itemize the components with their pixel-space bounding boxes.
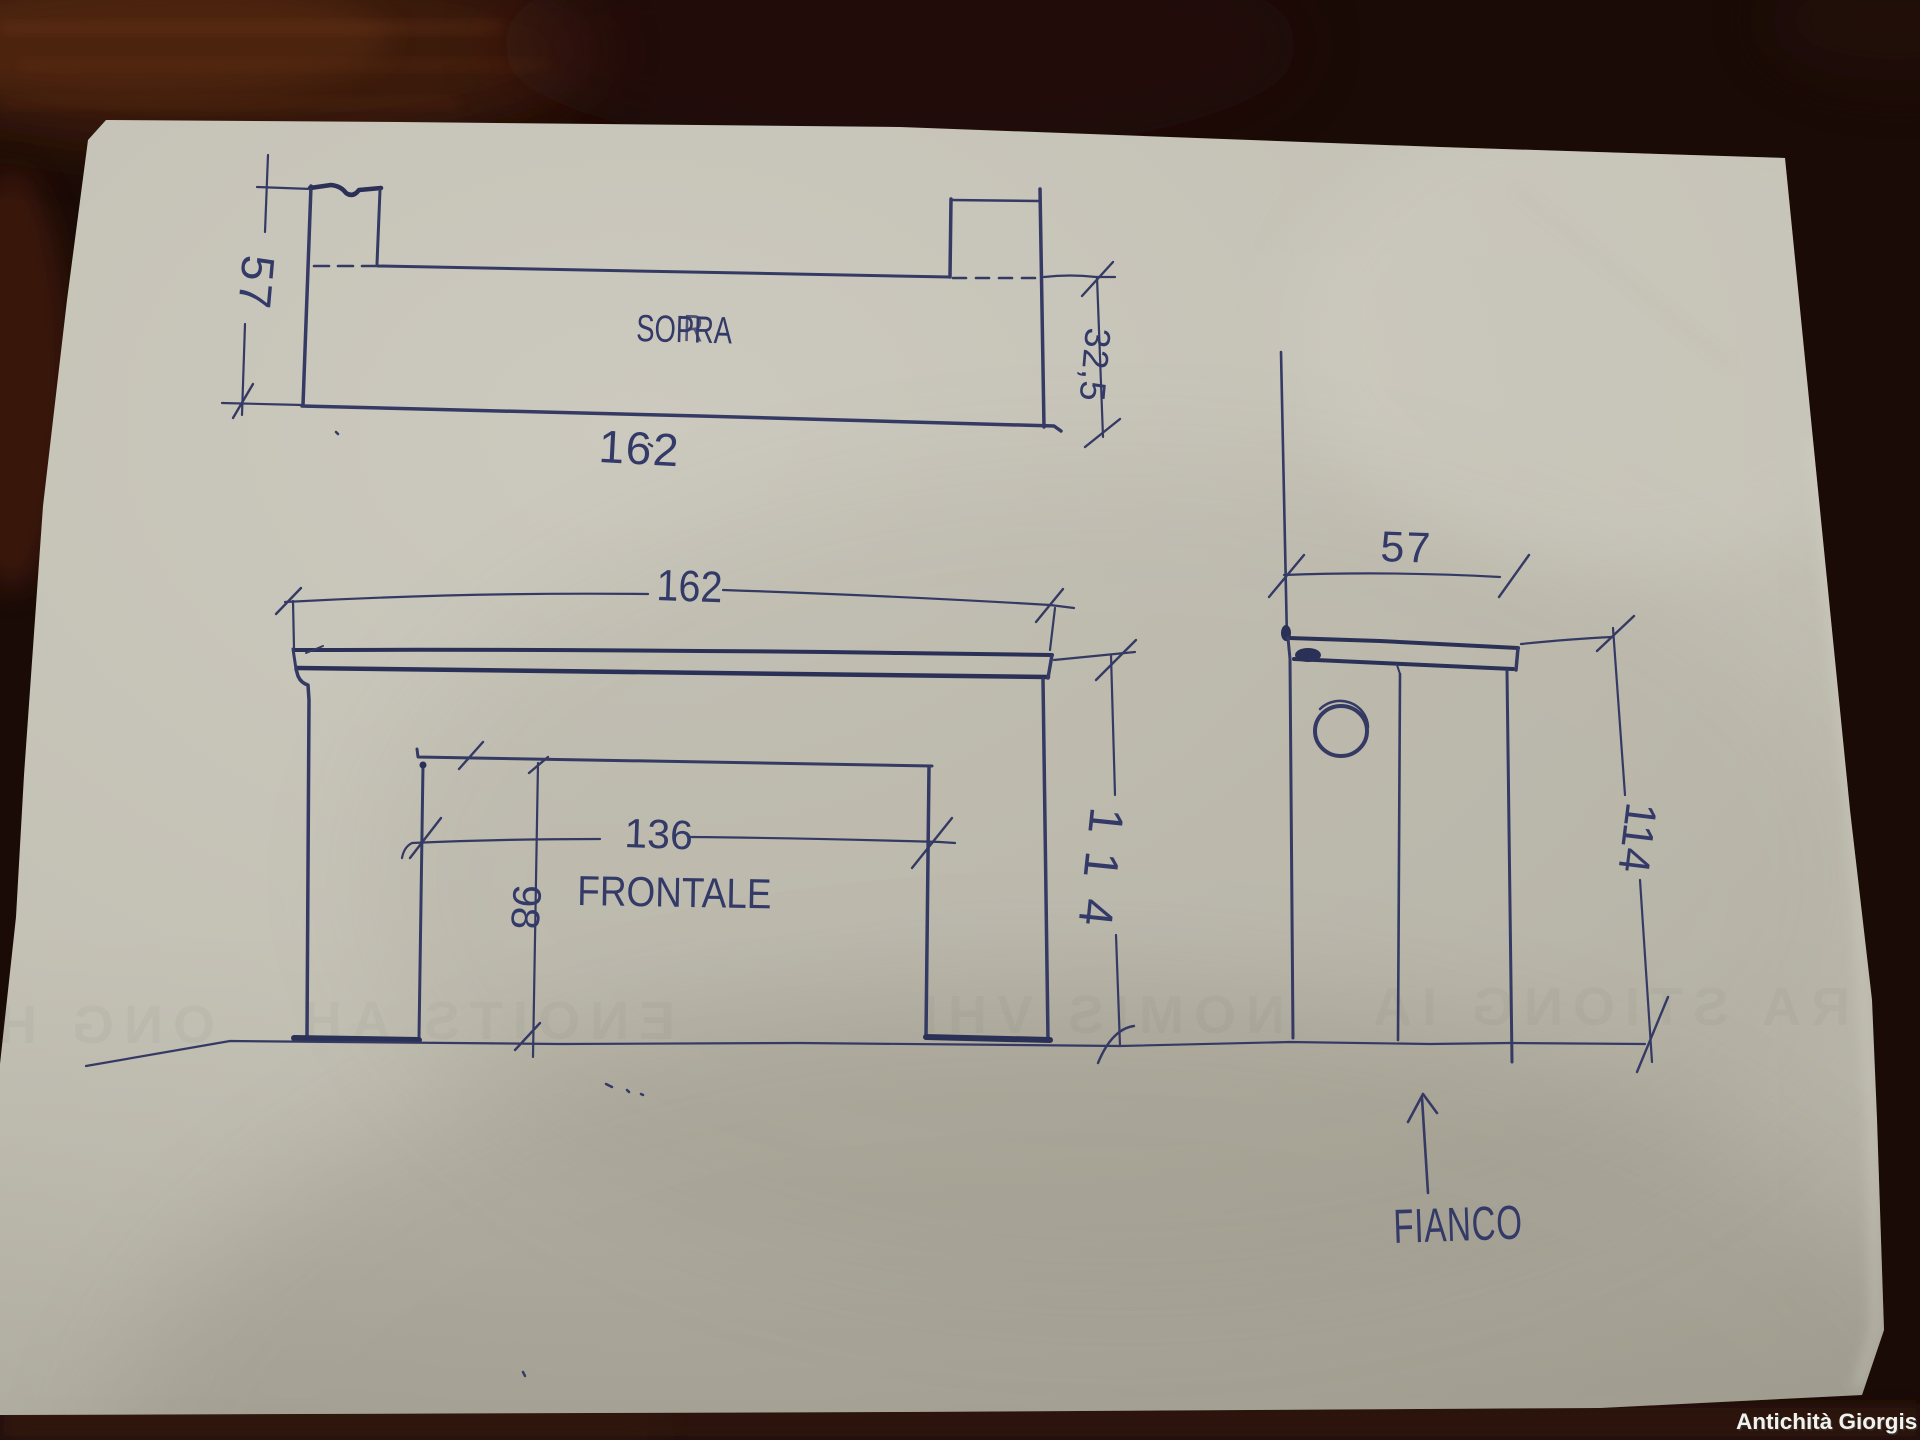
svg-text:57: 57 (1380, 523, 1433, 573)
svg-text:RA STIONG IA: RA STIONG IA (1363, 977, 1850, 1037)
svg-text:R: R (683, 308, 704, 351)
svg-text:114: 114 (1609, 800, 1666, 876)
svg-text:162: 162 (656, 560, 724, 612)
svg-text:136: 136 (624, 810, 694, 858)
svg-text:FRONTALE: FRONTALE (577, 868, 772, 918)
svg-text:32,5: 32,5 (1072, 326, 1119, 403)
svg-text:98: 98 (502, 883, 549, 930)
svg-text:FIANCO: FIANCO (1392, 1195, 1523, 1253)
svg-text:Antichità Giorgis: Antichità Giorgis (1736, 1409, 1917, 1434)
svg-text:162: 162 (597, 420, 681, 476)
svg-text:57: 57 (228, 253, 285, 312)
svg-text:ONG H: ONG H (0, 995, 215, 1055)
